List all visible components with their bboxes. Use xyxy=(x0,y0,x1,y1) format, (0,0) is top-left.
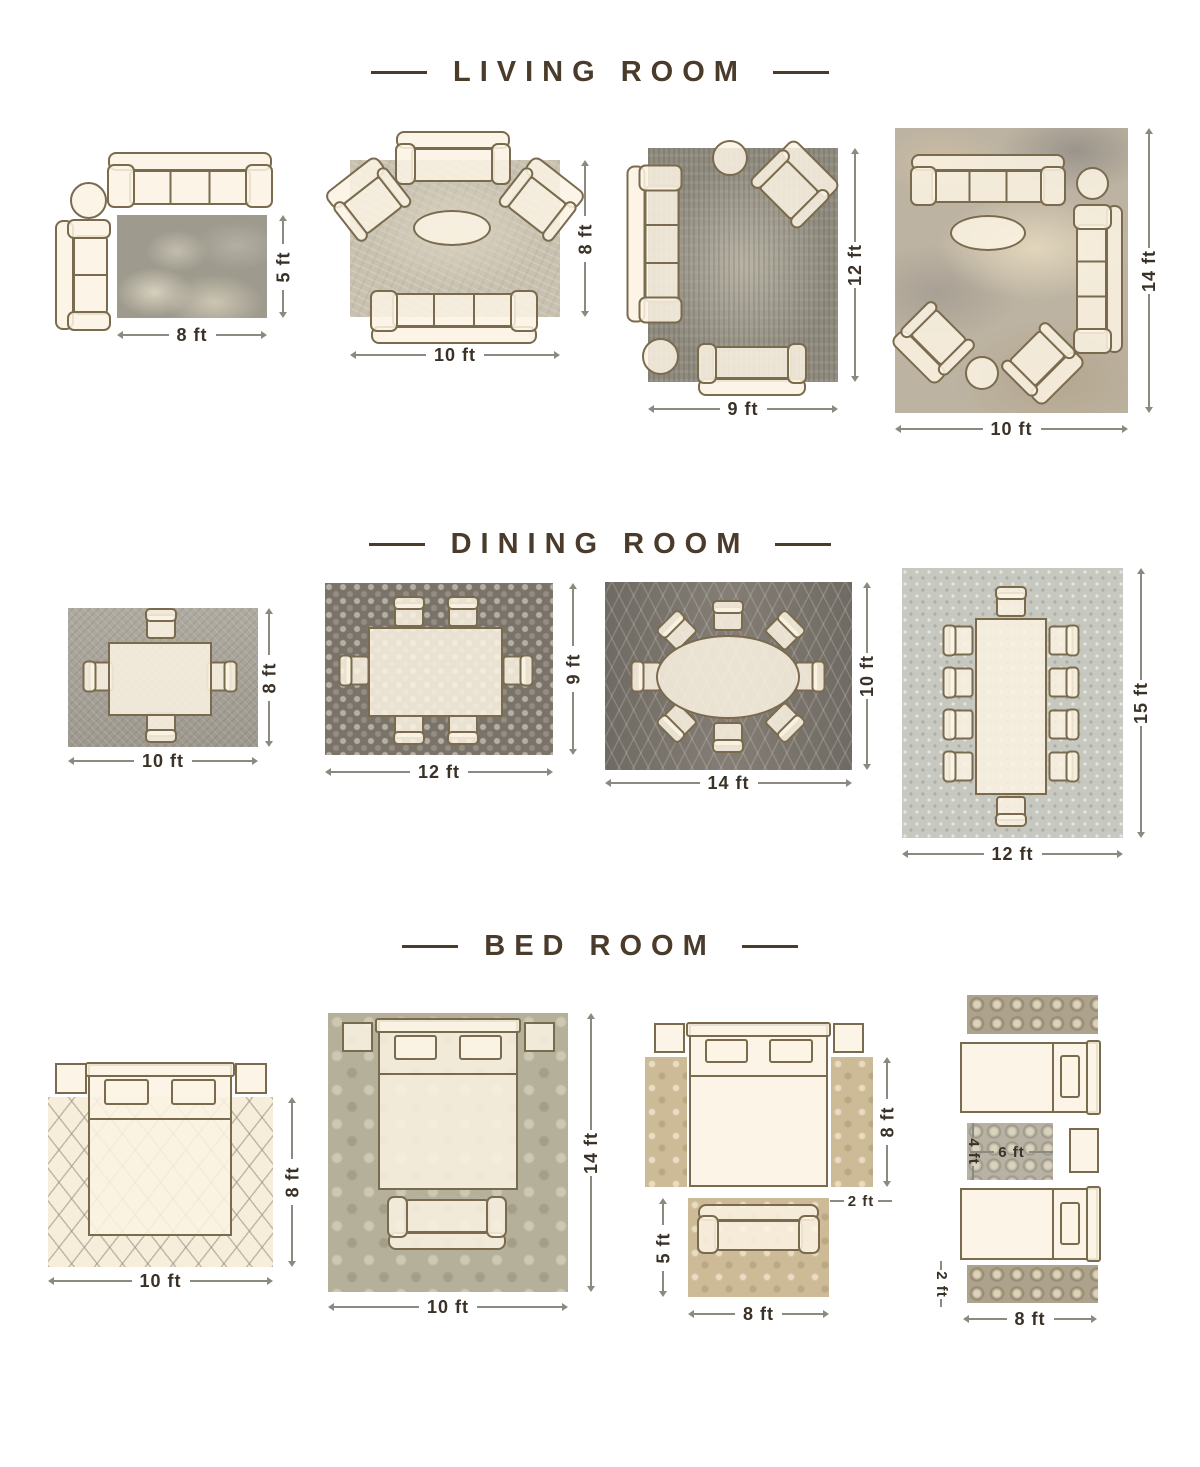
bed xyxy=(689,1024,828,1187)
sofa-seat xyxy=(129,170,251,205)
arrowhead-up xyxy=(265,608,273,614)
sofa-back xyxy=(371,326,537,344)
arrowhead-right xyxy=(846,779,852,787)
dimension-width: 12 ft xyxy=(902,843,1123,865)
arrowhead-down xyxy=(1145,407,1153,413)
dimension-label: 10 ft xyxy=(134,752,192,770)
dining-chair xyxy=(394,714,424,739)
arrowhead-down xyxy=(288,1261,296,1267)
dimension-label: 12 ft xyxy=(846,244,864,286)
dimension-height: 14 ft xyxy=(580,1013,602,1292)
dining-chair xyxy=(146,614,176,639)
three-seat-sofa xyxy=(629,168,681,321)
tick-left xyxy=(830,1200,836,1202)
arrowhead-left xyxy=(117,331,123,339)
dimension-label: 14 ft xyxy=(700,774,758,792)
dimension-label: 12 ft xyxy=(984,845,1042,863)
tick-left xyxy=(970,1151,976,1153)
sofa-back xyxy=(55,220,74,330)
living-rug-8x5 xyxy=(117,215,267,318)
pillow xyxy=(394,1035,438,1060)
nightstand xyxy=(833,1023,864,1053)
twin-bed xyxy=(960,1188,1098,1260)
dimension-label: 6 ft xyxy=(994,1145,1029,1160)
sofa-seat xyxy=(404,1199,491,1233)
dimension-height: 10 ft xyxy=(856,582,878,770)
round-side-table xyxy=(965,356,999,390)
dining-chair xyxy=(448,602,478,627)
dimension-label: 8 ft xyxy=(169,326,216,344)
dining-chair xyxy=(996,592,1026,617)
arrowhead-left xyxy=(902,850,908,858)
dimension-label: 15 ft xyxy=(1132,682,1150,724)
sofa-back xyxy=(627,166,646,323)
sofa-back xyxy=(108,152,272,171)
arrowhead-down xyxy=(851,376,859,382)
tick-bottom xyxy=(940,1301,942,1307)
arrowhead-right xyxy=(832,405,838,413)
dimension-width: 9 ft xyxy=(648,398,838,420)
arrowhead-right xyxy=(1122,425,1128,433)
nightstand xyxy=(524,1022,555,1052)
arrowhead-up xyxy=(883,1057,891,1063)
dining-chair xyxy=(713,722,743,747)
arrowhead-right xyxy=(823,1310,829,1318)
dimension-width: 8 ft xyxy=(963,1308,1097,1330)
dimension-label: 8 ft xyxy=(735,1305,782,1323)
arrowhead-down xyxy=(569,749,577,755)
arrowhead-down xyxy=(279,312,287,318)
dimension-label: 8 ft xyxy=(878,1107,896,1138)
runner-rug xyxy=(967,995,1098,1034)
dimension-label: 5 ft xyxy=(274,251,292,282)
dimension-height: 8 ft xyxy=(574,160,596,317)
arrowhead-down xyxy=(883,1181,891,1187)
section-title-label: DINING ROOM xyxy=(451,528,750,561)
dimension-label: 14 ft xyxy=(582,1131,600,1173)
dimension-rug-width: 8 ft xyxy=(688,1303,829,1325)
nightstand xyxy=(654,1023,685,1053)
bed xyxy=(378,1020,518,1190)
arrowhead-right xyxy=(547,768,553,776)
runner-rug xyxy=(967,1265,1098,1303)
arrowhead-up xyxy=(569,583,577,589)
sofa-back xyxy=(396,131,510,149)
bench xyxy=(390,1198,504,1248)
sofa-back xyxy=(698,378,806,396)
dimension-rug-height: 5 ft xyxy=(652,1198,674,1297)
section-title-bed-room: BED ROOM xyxy=(0,930,1200,963)
sofa-back xyxy=(911,154,1065,171)
round-side-table xyxy=(1076,167,1109,200)
dining-chair xyxy=(1049,710,1074,740)
rug-size-guide-canvas: LIVING ROOM 5 ft 8 ft 8 ft 10 ft xyxy=(0,0,1200,1467)
dining-chair xyxy=(949,626,974,656)
dimension-height: 9 ft xyxy=(562,583,584,755)
pillow xyxy=(769,1039,812,1063)
round-side-table xyxy=(70,182,107,219)
arrowhead-right xyxy=(267,1277,273,1285)
sofa-seat xyxy=(714,1220,803,1251)
pillow xyxy=(171,1079,216,1104)
dining-chair xyxy=(713,606,743,631)
arrowhead-left xyxy=(605,779,611,787)
dimension-label: 10 ft xyxy=(132,1272,190,1290)
dimension-width: 8 ft xyxy=(117,324,267,346)
dimension-height: 5 ft xyxy=(272,215,294,318)
dimension-width: 12 ft xyxy=(325,761,553,783)
arrowhead-right xyxy=(562,1303,568,1311)
tick-top xyxy=(972,1123,974,1129)
arrowhead-up xyxy=(288,1097,296,1103)
dimension-width: 10 ft xyxy=(328,1296,568,1318)
tick-top xyxy=(940,1261,942,1267)
dimension-label: 2 ft xyxy=(844,1194,879,1209)
dimension-runner-width: 2 ft xyxy=(830,1190,892,1212)
dimension-bed-height: 8 ft xyxy=(876,1057,898,1187)
arrowhead-right xyxy=(261,331,267,339)
sofa-seat xyxy=(931,170,1045,203)
dimension-label: 10 ft xyxy=(426,346,484,364)
nightstand xyxy=(235,1063,267,1094)
dimension-label: 8 ft xyxy=(283,1167,301,1198)
arrowhead-left xyxy=(325,768,331,776)
runner-rug xyxy=(831,1057,873,1187)
arrowhead-down xyxy=(265,741,273,747)
dimension-height: 15 ft xyxy=(1130,568,1152,838)
arrowhead-left xyxy=(895,425,901,433)
oval-coffee-table xyxy=(413,210,491,246)
dimension-width: 10 ft xyxy=(895,418,1128,440)
dimension-runner-height: 2 ft xyxy=(930,1261,952,1307)
pillow xyxy=(104,1079,149,1104)
dimension-label: 8 ft xyxy=(1007,1310,1054,1328)
arrowhead-down xyxy=(1137,832,1145,838)
arrowhead-up xyxy=(581,160,589,166)
sofa-back xyxy=(1106,205,1123,353)
arrowhead-down xyxy=(581,311,589,317)
dimension-height: 14 ft xyxy=(1138,128,1160,413)
three-seat-sofa xyxy=(373,292,535,342)
tick-bottom xyxy=(972,1174,974,1180)
sofa-back xyxy=(698,1204,819,1221)
arrowhead-right xyxy=(1091,1315,1097,1323)
nightstand xyxy=(55,1063,87,1094)
dimension-rug-width: 6 ft xyxy=(970,1141,1053,1163)
dimension-width: 10 ft xyxy=(48,1270,273,1292)
dimension-label: 8 ft xyxy=(260,662,278,693)
dimension-label: 10 ft xyxy=(419,1298,477,1316)
section-title-living-room: LIVING ROOM xyxy=(0,56,1200,89)
dimension-width: 10 ft xyxy=(68,750,258,772)
three-seat-sofa xyxy=(913,156,1063,204)
arrowhead-left xyxy=(48,1277,54,1285)
arrowhead-up xyxy=(1137,568,1145,574)
pillow xyxy=(1060,1055,1080,1098)
dining-chair xyxy=(448,714,478,739)
sofa-seat xyxy=(73,235,108,316)
round-side-table xyxy=(712,140,748,176)
dimension-label: 14 ft xyxy=(1140,249,1158,291)
arrowhead-left xyxy=(648,405,654,413)
dimension-height: 8 ft xyxy=(281,1097,303,1267)
dining-chair xyxy=(1049,626,1074,656)
arrowhead-up xyxy=(1145,128,1153,134)
three-seat-sofa xyxy=(110,154,270,206)
arrowhead-up xyxy=(279,215,287,221)
arrowhead-left xyxy=(328,1303,334,1311)
arrowhead-left xyxy=(350,351,356,359)
three-seat-sofa xyxy=(1075,207,1121,351)
tick-right xyxy=(886,1200,892,1202)
dimension-label: 10 ft xyxy=(858,655,876,697)
loveseat xyxy=(700,345,804,394)
dimension-label: 8 ft xyxy=(576,223,594,254)
bed xyxy=(88,1064,232,1236)
arrowhead-down xyxy=(659,1291,667,1297)
tick-right xyxy=(1047,1151,1053,1153)
oval-coffee-table xyxy=(950,215,1026,251)
dimension-label: 10 ft xyxy=(983,420,1041,438)
loveseat xyxy=(398,133,508,183)
arrowhead-up xyxy=(659,1198,667,1204)
dining-chair xyxy=(949,752,974,782)
sofa-back xyxy=(388,1232,506,1250)
dimension-width: 14 ft xyxy=(605,772,852,794)
arrowhead-up xyxy=(851,148,859,154)
runner-rug xyxy=(645,1057,687,1187)
section-title-label: BED ROOM xyxy=(484,930,716,963)
dimension-label: 9 ft xyxy=(720,400,767,418)
dimension-label: 5 ft xyxy=(654,1232,672,1263)
dining-table xyxy=(108,642,212,716)
arrowhead-right xyxy=(252,757,258,765)
arrowhead-down xyxy=(587,1286,595,1292)
nightstand xyxy=(1069,1128,1099,1173)
arrowhead-right xyxy=(1117,850,1123,858)
pillow xyxy=(705,1039,748,1063)
oval-dining-table xyxy=(656,635,800,719)
dimension-label: 2 ft xyxy=(934,1271,949,1298)
arrowhead-up xyxy=(863,582,871,588)
arrowhead-left xyxy=(68,757,74,765)
dining-chair xyxy=(394,602,424,627)
dining-chair xyxy=(996,796,1026,821)
sofa-seat xyxy=(1076,224,1107,333)
dining-table xyxy=(368,627,503,717)
sofa-seat xyxy=(411,148,495,182)
section-title-label: LIVING ROOM xyxy=(453,56,747,89)
twin-bed xyxy=(960,1042,1098,1113)
arrowhead-left xyxy=(963,1315,969,1323)
dining-chair xyxy=(949,668,974,698)
dimension-height: 12 ft xyxy=(844,148,866,382)
arrowhead-left xyxy=(688,1310,694,1318)
pillow xyxy=(459,1035,503,1060)
dining-table xyxy=(975,618,1047,795)
arrowhead-down xyxy=(863,764,871,770)
arrowhead-up xyxy=(587,1013,595,1019)
pillow xyxy=(1060,1202,1080,1246)
nightstand xyxy=(342,1022,373,1052)
dining-chair xyxy=(503,656,528,686)
sofa-seat xyxy=(392,293,515,327)
dimension-label: 9 ft xyxy=(564,654,582,685)
round-side-table xyxy=(642,338,679,375)
bench xyxy=(700,1206,817,1252)
loveseat xyxy=(57,222,109,328)
dining-chair xyxy=(949,710,974,740)
dining-chair xyxy=(1049,752,1074,782)
dimension-label: 12 ft xyxy=(410,763,468,781)
dining-chair xyxy=(345,656,370,686)
arrowhead-right xyxy=(554,351,560,359)
sofa-seat xyxy=(712,346,791,379)
section-title-dining-room: DINING ROOM xyxy=(0,528,1200,561)
sofa-seat xyxy=(644,186,679,302)
dimension-width: 10 ft xyxy=(350,344,560,366)
dining-chair xyxy=(1049,668,1074,698)
dimension-height: 8 ft xyxy=(258,608,280,747)
